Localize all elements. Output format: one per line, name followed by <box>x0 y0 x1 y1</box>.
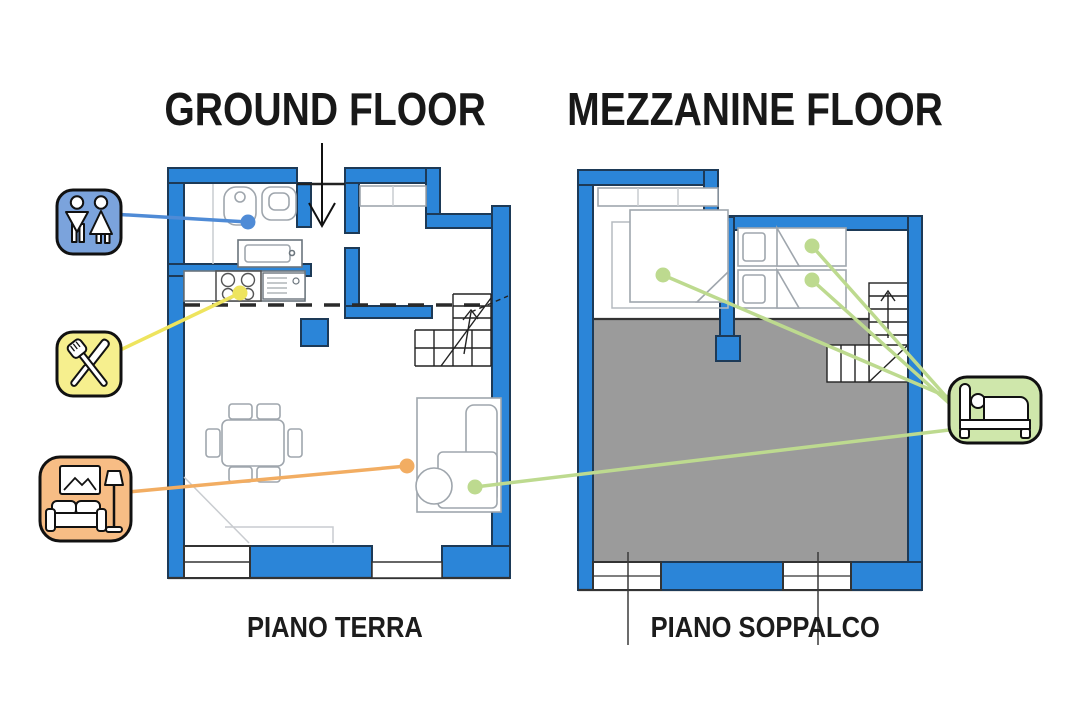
wardrobe <box>360 186 426 206</box>
kitchen-sink <box>263 273 305 299</box>
pillar-mezzanine <box>716 336 740 361</box>
closet <box>598 188 718 206</box>
sofa <box>416 398 501 512</box>
pillar-ground <box>301 319 328 346</box>
connector-dot <box>468 480 483 495</box>
sofa-glyph <box>46 501 106 531</box>
connector-dot <box>805 239 820 254</box>
mezzanine-floor-plan <box>578 170 922 645</box>
floorplan-infographic: GROUND FLOOR MEZZANINE FLOOR <box>0 0 1080 720</box>
restroom-icon <box>55 188 123 261</box>
connector-dot <box>233 286 248 301</box>
dining-table <box>206 404 302 482</box>
living-room-icon <box>38 455 133 548</box>
ground-floor-plan <box>168 143 510 578</box>
single-bed-2 <box>738 270 846 308</box>
connector-dot <box>656 268 671 283</box>
door-swing <box>184 477 333 543</box>
connector-dot <box>400 459 415 474</box>
connector-dot <box>241 215 256 230</box>
mezzanine-floor-caption: PIANO SOPPALCO <box>595 612 935 645</box>
ground-floor-caption: PIANO TERRA <box>170 612 500 645</box>
single-bed-1 <box>738 228 846 266</box>
connector-dot <box>805 273 820 288</box>
bed-icon <box>947 375 1043 450</box>
cutlery-icon <box>55 330 123 403</box>
bathroom-fixtures <box>213 184 302 267</box>
picture-frame-glyph <box>60 466 100 494</box>
double-bed <box>612 210 728 308</box>
